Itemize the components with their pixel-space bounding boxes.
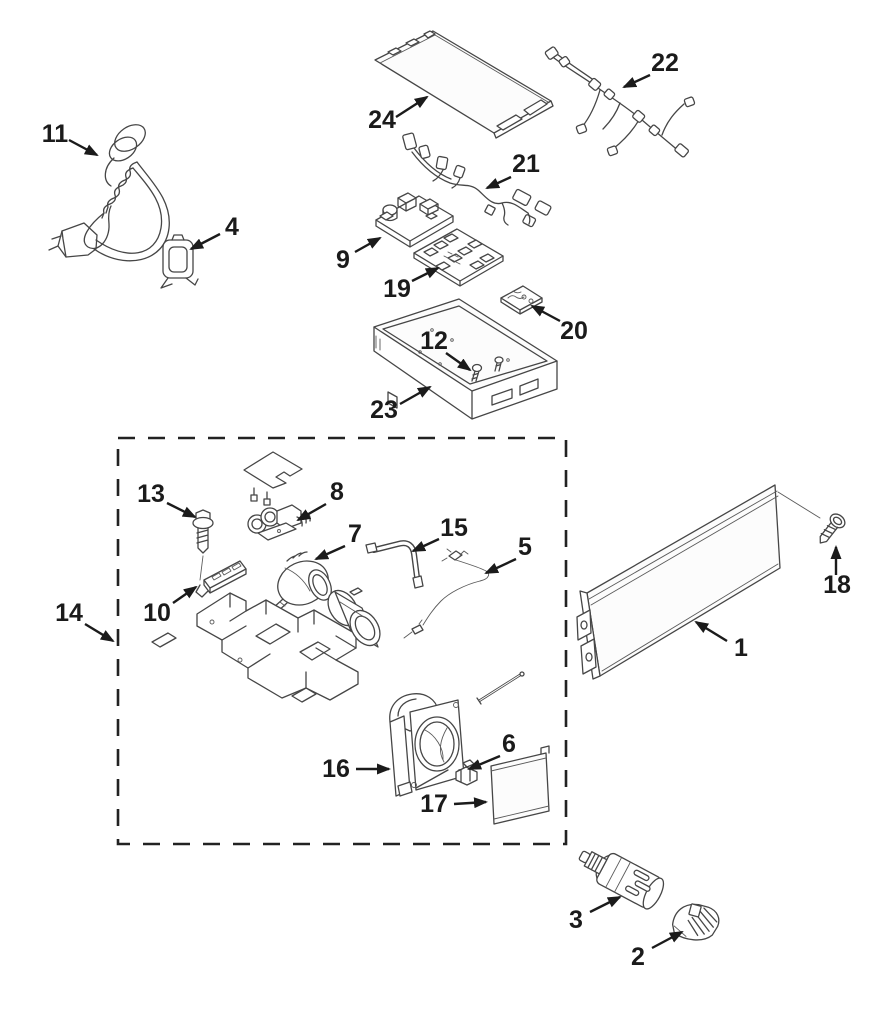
part-screw-18 [778,492,848,548]
callout-10: 10 [143,587,196,627]
callout-number-5: 5 [518,533,532,561]
callout-number-22: 22 [651,49,679,77]
part-hex-screw [193,510,213,580]
callout-14: 14 [55,599,113,641]
callout-arrow-13 [167,503,195,517]
parts-diagram-page: 123456789101112131415161718192021222324 [0,0,891,1024]
callout-arrow-14 [85,624,113,641]
callout-number-11: 11 [42,120,69,148]
callout-number-7: 7 [348,520,362,548]
callout-2: 2 [631,932,682,971]
callout-1: 1 [696,622,748,662]
callout-arrow-24 [396,97,427,117]
part-cord-clamp [161,235,198,288]
callout-19: 19 [383,268,438,303]
callout-arrow-1 [696,622,727,641]
callout-18: 18 [823,547,851,599]
callout-number-15: 15 [440,514,468,542]
callout-arrow-17 [454,802,486,804]
callout-arrow-23 [400,387,430,404]
callout-number-6: 6 [502,730,516,758]
part-water-filter [573,840,668,912]
callout-17: 17 [420,790,486,818]
callout-arrow-5 [486,559,516,573]
callout-number-2: 2 [631,943,645,971]
callout-arrow-2 [652,932,682,948]
callout-24: 24 [368,97,427,134]
part-small-cover-plate [244,452,302,505]
callout-8: 8 [298,478,344,520]
callout-number-16: 16 [322,755,350,783]
callout-number-1: 1 [734,634,748,662]
part-filter-cap [670,899,722,945]
part-small-board [501,286,542,314]
part-fan-assembly [390,694,464,796]
callout-number-17: 17 [420,790,448,818]
callout-number-24: 24 [368,106,396,134]
part-chassis-bracket [152,593,358,702]
callout-arrow-20 [532,306,560,321]
part-led-board [196,561,246,597]
callout-5: 5 [486,533,532,573]
callout-arrow-15 [413,539,439,551]
callout-arrow-11 [69,140,97,155]
callout-11: 11 [42,120,97,155]
callout-arrow-7 [316,546,345,559]
callout-number-8: 8 [330,478,344,506]
callout-number-12: 12 [420,327,448,355]
callout-4: 4 [191,213,239,249]
part-inlet-valve [248,505,310,540]
callout-3: 3 [569,897,620,934]
callout-number-21: 21 [512,150,540,178]
callout-number-13: 13 [137,480,165,508]
callout-number-18: 18 [823,571,851,599]
callout-number-3: 3 [569,906,583,934]
callout-21: 21 [487,150,540,188]
part-base-tray [374,299,557,419]
callout-22: 22 [624,49,679,87]
callout-number-14: 14 [55,599,83,627]
callout-arrow-8 [298,504,326,520]
callout-16: 16 [322,755,389,783]
callout-number-23: 23 [370,396,398,424]
callout-arrow-4 [191,234,220,249]
callout-arrow-10 [173,587,196,603]
callout-15: 15 [413,514,468,551]
callout-arrow-3 [590,897,620,912]
part-cover-plate [491,746,549,824]
callout-number-20: 20 [560,317,588,345]
part-rod [477,672,524,704]
callout-9: 9 [336,238,380,274]
callout-arrow-19 [412,268,438,281]
callout-20: 20 [532,306,588,345]
callout-layer: 123456789101112131415161718192021222324 [42,49,851,971]
part-grille-panel [577,485,780,679]
callout-13: 13 [137,480,195,517]
parts-diagram-svg: 123456789101112131415161718192021222324 [0,0,891,1024]
part-top-panel [375,31,553,138]
callout-number-10: 10 [143,599,171,627]
callout-number-9: 9 [336,246,350,274]
callout-7: 7 [316,520,362,559]
callout-number-19: 19 [383,275,411,303]
callout-arrow-22 [624,75,650,87]
callout-23: 23 [370,387,430,424]
callout-arrow-9 [355,238,380,252]
callout-number-4: 4 [225,213,239,241]
callout-arrow-21 [487,177,511,188]
